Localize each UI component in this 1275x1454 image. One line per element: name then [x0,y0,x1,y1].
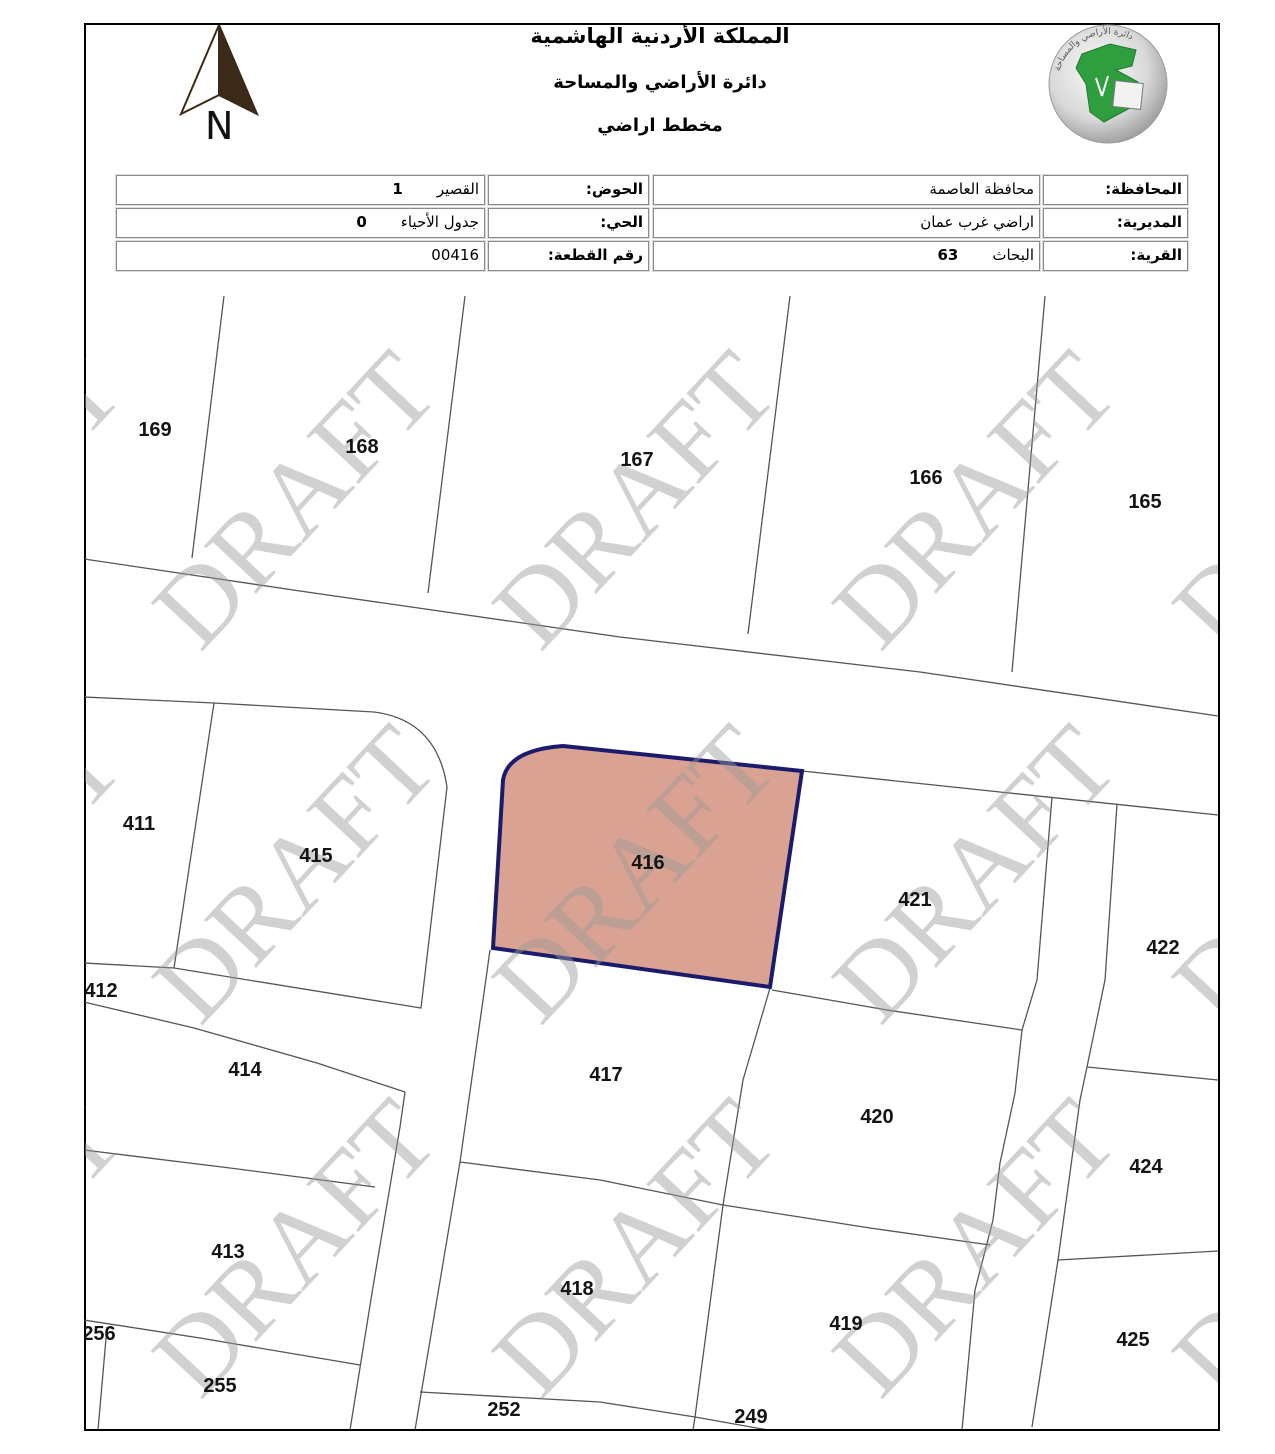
table-row: 00416 رقم القطعة: البحاث63 القرية: [116,241,1188,271]
north-arrow-right-half [219,25,257,114]
plot-label-425: 425 [1116,1329,1149,1351]
plot-label-165: 165 [1128,491,1161,513]
plot-label-414: 414 [228,1059,262,1081]
draft-watermark: DRAFT [1151,1078,1218,1418]
draft-watermark: DRAFT [811,704,1140,1044]
basin-label: الحوض: [488,175,649,205]
plot-label-417: 417 [589,1064,622,1086]
cadastral-map: DRAFTDRAFTDRAFTDRAFTDRAFTDRAFTDRAFTDRAFT… [85,294,1218,1429]
page-title: المملكة الأردنية الهاشمية [400,24,920,48]
draft-watermarks: DRAFTDRAFTDRAFTDRAFTDRAFTDRAFTDRAFTDRAFT… [85,330,1218,1418]
draft-watermark: DRAFT [131,704,460,1044]
draft-watermark: DRAFT [811,330,1140,670]
plot-label-421: 421 [898,889,931,911]
plot-number-value-cell: 00416 [116,241,485,271]
plot-label-169: 169 [138,419,171,441]
plot-label-413: 413 [211,1241,244,1263]
plot-label-252: 252 [487,1399,520,1421]
plot-label-418: 418 [560,1278,593,1300]
village-label: القرية: [1043,241,1188,271]
plot-number-label: رقم القطعة: [488,241,649,271]
district-value-cell: جدول الأحياء0 [116,208,485,238]
plot-label-420: 420 [860,1106,893,1128]
directorate-label: المديرية: [1043,208,1188,238]
directorate-value: اراضي غرب عمان [920,213,1034,231]
village-value-cell: البحاث63 [653,241,1040,271]
plot-info-table: القصير1 الحوض: محافظة العاصمة المحافظة: … [116,175,1188,274]
logo-document-glyph [1113,81,1144,110]
plot-label-411: 411 [123,813,155,835]
table-row: جدول الأحياء0 الحي: اراضي غرب عمان المدي… [116,208,1188,238]
road-south-edge-left [85,697,214,703]
governorate-value: محافظة العاصمة [929,180,1034,198]
district-label: الحي: [488,208,649,238]
draft-watermark: DRAFT [811,1078,1140,1418]
district-number: 0 [356,213,366,231]
plot-label-168: 168 [345,436,378,458]
north-arrow-left-half [181,25,219,114]
basin-number: 1 [392,180,402,198]
boundary-168-167 [428,296,465,593]
plot-label-422: 422 [1146,937,1179,959]
boundary-418-252-249 [420,1392,768,1429]
plot-label-419: 419 [829,1313,862,1335]
plot-label-256: 256 [85,1323,116,1345]
boundary-422-424 [1087,1067,1218,1080]
table-row: القصير1 الحوض: محافظة العاصمة المحافظة: [116,175,1188,205]
plot-label-166: 166 [909,467,942,489]
department-logo: دائرة الأراضي والمساحة [1044,20,1172,148]
directorate-value-cell: اراضي غرب عمان [653,208,1040,238]
plot-label-255: 255 [203,1375,236,1397]
header: المملكة الأردنية الهاشمية دائرة الأراضي … [400,24,920,136]
draft-watermark: DRAFT [131,330,460,670]
department-title: دائرة الأراضي والمساحة [400,72,920,93]
plot-label-424: 424 [1129,1156,1163,1178]
governorate-value-cell: محافظة العاصمة [653,175,1040,205]
boundary-167-166 [748,296,790,634]
draft-watermark: DRAFT [85,330,144,670]
governorate-label: المحافظة: [1043,175,1188,205]
plan-type-title: مخطط اراضي [400,115,920,136]
boundary-424-425 [1058,1251,1218,1260]
village-value: البحاث [992,246,1034,264]
land-plan-page: N المملكة الأردنية الهاشمية دائرة الأراض… [0,0,1275,1454]
district-value: جدول الأحياء [401,213,479,231]
draft-watermark: DRAFT [85,1078,144,1418]
plot-label-167: 167 [620,449,653,471]
plot-label-416: 416 [631,852,664,874]
draft-watermark: DRAFT [1151,704,1218,1044]
basin-value-cell: القصير1 [116,175,485,205]
plot-number-value: 00416 [431,246,479,264]
plot-label-415: 415 [299,845,332,867]
plot-label-249: 249 [734,1406,767,1428]
village-number: 63 [937,246,958,264]
draft-watermark: DRAFT [131,1078,460,1418]
plot-label-412: 412 [85,980,118,1002]
basin-value: القصير [437,180,479,198]
draft-watermark: DRAFT [471,1078,800,1418]
compass-north-label: N [205,104,233,148]
